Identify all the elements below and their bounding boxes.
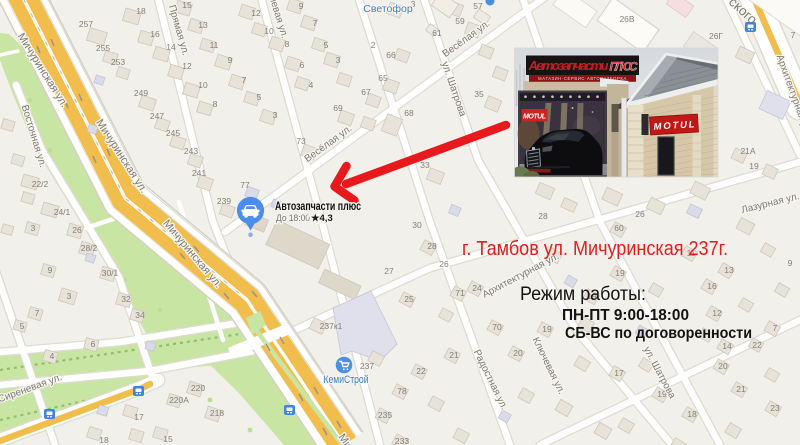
svg-text:73: 73 xyxy=(296,136,306,146)
svg-text:21А: 21А xyxy=(740,146,755,156)
svg-text:14: 14 xyxy=(722,341,732,351)
svg-text:65: 65 xyxy=(378,73,388,83)
svg-text:35: 35 xyxy=(474,89,484,99)
svg-text:СБ-ВС по договоренности: СБ-ВС по договоренности xyxy=(565,325,752,342)
svg-text:66: 66 xyxy=(386,50,396,60)
svg-text:235: 235 xyxy=(378,410,392,420)
svg-text:34: 34 xyxy=(135,310,145,320)
svg-text:ПЛЮС: ПЛЮС xyxy=(610,60,638,74)
svg-text:10: 10 xyxy=(264,26,274,36)
svg-text:15: 15 xyxy=(182,0,192,10)
svg-text:19: 19 xyxy=(542,324,552,334)
svg-text:3: 3 xyxy=(336,55,341,65)
svg-text:77: 77 xyxy=(240,180,250,190)
svg-text:237: 237 xyxy=(360,361,374,371)
svg-text:253: 253 xyxy=(111,57,125,67)
svg-text:12: 12 xyxy=(182,61,192,71)
svg-text:8: 8 xyxy=(213,99,218,109)
svg-text:Автозапчасти: Автозапчасти xyxy=(528,58,609,73)
svg-text:26В: 26В xyxy=(619,14,634,24)
svg-text:257: 257 xyxy=(79,19,93,29)
svg-text:7: 7 xyxy=(313,18,318,28)
svg-text:26Г: 26Г xyxy=(709,31,723,41)
svg-text:245: 245 xyxy=(166,128,180,138)
svg-text:4: 4 xyxy=(50,351,55,361)
svg-text:7: 7 xyxy=(773,323,778,333)
svg-text:9: 9 xyxy=(788,258,793,268)
svg-text:243: 243 xyxy=(184,146,198,156)
svg-text:32: 32 xyxy=(121,294,131,304)
svg-text:255: 255 xyxy=(96,43,110,53)
svg-text:До 18:00: До 18:00 xyxy=(276,213,310,224)
svg-text:22: 22 xyxy=(752,340,762,350)
svg-text:18: 18 xyxy=(99,435,109,445)
svg-text:22: 22 xyxy=(416,366,426,376)
svg-text:26: 26 xyxy=(72,225,82,235)
svg-text:15: 15 xyxy=(163,434,173,444)
svg-text:69: 69 xyxy=(333,103,343,113)
svg-text:14: 14 xyxy=(166,42,176,52)
svg-text:249: 249 xyxy=(134,88,148,98)
svg-text:MOTUL: MOTUL xyxy=(523,114,546,121)
svg-text:Автозапчасти плюс: Автозапчасти плюс xyxy=(275,199,361,213)
svg-text:5: 5 xyxy=(324,40,329,50)
svg-text:17: 17 xyxy=(614,368,624,378)
svg-text:4: 4 xyxy=(309,80,314,90)
svg-text:19: 19 xyxy=(749,161,759,171)
svg-text:61: 61 xyxy=(432,28,442,38)
svg-text:78: 78 xyxy=(397,386,407,396)
svg-text:67: 67 xyxy=(361,87,371,97)
svg-text:16: 16 xyxy=(150,29,160,39)
svg-text:28/2: 28/2 xyxy=(81,243,98,253)
svg-text:11: 11 xyxy=(210,40,219,50)
svg-text:33: 33 xyxy=(420,160,430,170)
svg-text:8: 8 xyxy=(285,39,290,49)
svg-text:13: 13 xyxy=(724,265,734,275)
svg-text:КемиСтрой: КемиСтрой xyxy=(324,374,369,386)
svg-text:25: 25 xyxy=(404,294,414,304)
svg-text:16: 16 xyxy=(707,281,717,291)
svg-text:237к1: 237к1 xyxy=(320,321,343,331)
svg-text:60: 60 xyxy=(614,223,624,233)
svg-text:3: 3 xyxy=(273,110,278,120)
svg-text:28: 28 xyxy=(427,241,437,251)
svg-text:5: 5 xyxy=(257,92,262,102)
svg-text:24/1: 24/1 xyxy=(54,207,71,217)
svg-text:22/2: 22/2 xyxy=(32,179,49,189)
svg-text:23: 23 xyxy=(770,403,780,413)
svg-text:26: 26 xyxy=(635,209,645,219)
svg-text:27: 27 xyxy=(384,266,394,276)
svg-text:13: 13 xyxy=(198,20,208,30)
svg-text:19: 19 xyxy=(615,268,625,278)
svg-text:г. Тамбов ул. Мичуринская 237г: г. Тамбов ул. Мичуринская 237г. xyxy=(462,238,728,260)
svg-text:9: 9 xyxy=(48,265,53,275)
svg-text:20: 20 xyxy=(513,348,523,358)
svg-text:20: 20 xyxy=(718,361,728,371)
svg-text:18: 18 xyxy=(136,6,146,16)
svg-text:7: 7 xyxy=(791,30,796,40)
svg-text:6: 6 xyxy=(91,339,96,349)
svg-text:17: 17 xyxy=(134,412,144,422)
svg-text:241: 241 xyxy=(192,168,206,178)
svg-text:220: 220 xyxy=(191,383,205,393)
svg-text:57: 57 xyxy=(473,1,483,11)
svg-text:59: 59 xyxy=(455,16,465,26)
svg-text:233: 233 xyxy=(395,436,409,445)
svg-text:68: 68 xyxy=(404,108,414,118)
svg-text:7: 7 xyxy=(35,308,40,318)
svg-text:247: 247 xyxy=(150,111,164,121)
svg-text:3: 3 xyxy=(67,291,72,301)
svg-text:30: 30 xyxy=(412,220,422,230)
svg-text:7: 7 xyxy=(242,75,247,85)
svg-text:71: 71 xyxy=(455,288,465,298)
svg-text:2: 2 xyxy=(371,40,376,50)
svg-text:30/1: 30/1 xyxy=(102,268,119,278)
svg-text:21: 21 xyxy=(736,384,746,394)
svg-text:26: 26 xyxy=(439,259,449,269)
svg-text:9: 9 xyxy=(299,1,304,11)
svg-text:9: 9 xyxy=(228,55,233,65)
svg-text:12: 12 xyxy=(251,8,261,18)
svg-text:70: 70 xyxy=(492,322,502,332)
svg-text:6: 6 xyxy=(300,60,305,70)
svg-text:3: 3 xyxy=(31,223,36,233)
svg-text:218: 218 xyxy=(210,408,224,418)
svg-text:10: 10 xyxy=(198,80,208,90)
svg-text:220А: 220А xyxy=(169,395,189,405)
svg-text:ПН-ПТ 9:00-18:00: ПН-ПТ 9:00-18:00 xyxy=(562,307,689,324)
svg-text:5: 5 xyxy=(20,321,25,331)
svg-text:Режим работы:: Режим работы: xyxy=(520,284,646,305)
svg-text:Светофор: Светофор xyxy=(363,3,413,15)
svg-text:21: 21 xyxy=(449,350,459,360)
svg-text:18: 18 xyxy=(687,409,697,419)
svg-text:28: 28 xyxy=(538,211,548,221)
svg-text:12: 12 xyxy=(712,308,722,318)
svg-text:★4,3: ★4,3 xyxy=(311,213,333,224)
svg-text:239: 239 xyxy=(217,196,231,206)
